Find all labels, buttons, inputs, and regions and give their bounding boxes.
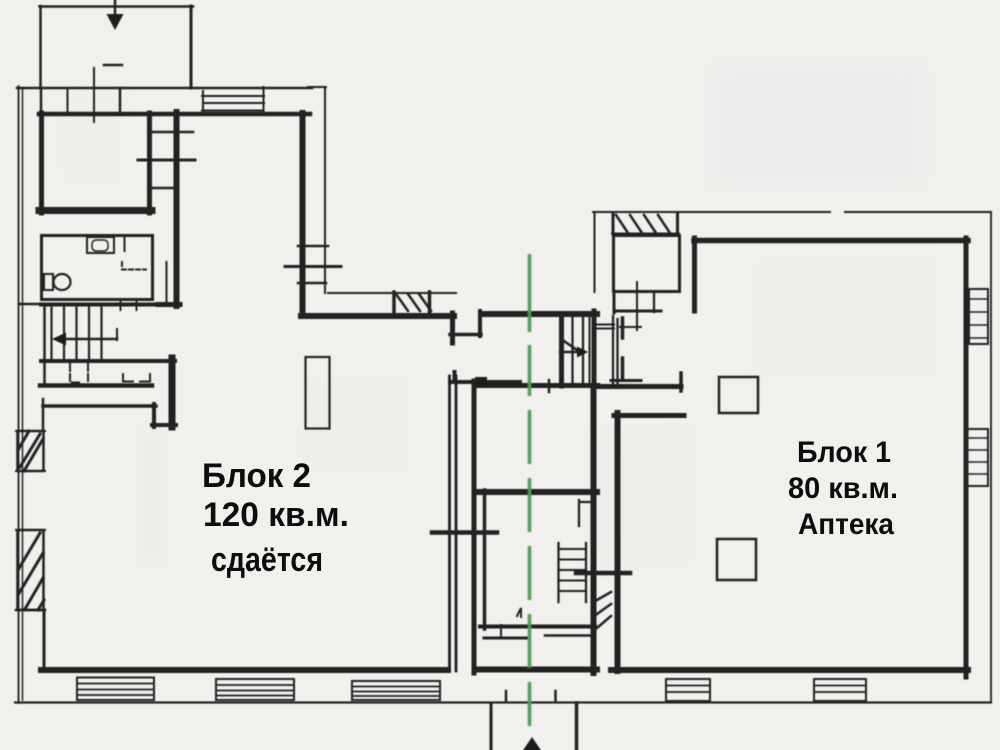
svg-text:Аптека: Аптека	[798, 508, 894, 541]
svg-text:сдаётся: сдаётся	[211, 541, 323, 579]
svg-text:80 кв.м.: 80 кв.м.	[788, 472, 898, 505]
svg-text:Блок 1: Блок 1	[797, 436, 891, 469]
svg-text:Блок 2: Блок 2	[202, 457, 311, 495]
svg-text:120 кв.м.: 120 кв.м.	[203, 496, 349, 534]
